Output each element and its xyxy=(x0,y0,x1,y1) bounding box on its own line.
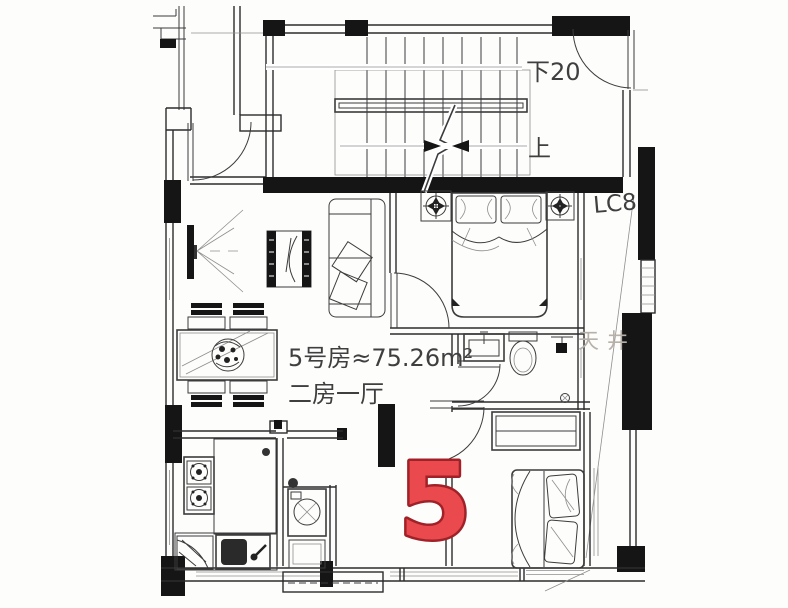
utility-walls xyxy=(277,438,336,566)
window-code-label: LC8 xyxy=(592,189,638,219)
column xyxy=(552,16,630,36)
ceiling-vent-icon xyxy=(421,191,451,221)
dining-table xyxy=(177,330,277,380)
area-label: 5号房≈75.26m² xyxy=(288,344,473,372)
ceiling-vent-icon xyxy=(546,192,574,220)
table-diagonals xyxy=(182,331,268,374)
door-leaf xyxy=(188,123,193,181)
stair-up-label: 上 xyxy=(528,136,551,162)
door-leaf xyxy=(628,30,634,89)
stove-icon xyxy=(184,457,214,514)
chair xyxy=(230,303,267,329)
lightwell-label: 天井 xyxy=(578,329,636,353)
stair-treads xyxy=(367,37,517,177)
single-bed xyxy=(512,470,584,568)
floorplan-canvas: 下20 上 xyxy=(0,0,788,608)
pillow xyxy=(332,242,372,282)
table-inner xyxy=(180,333,274,377)
landing-door xyxy=(573,29,634,89)
faucet-icon xyxy=(254,545,266,557)
wall-jog xyxy=(166,108,191,130)
stair-left-wall xyxy=(266,33,273,177)
sofa xyxy=(329,199,385,317)
stairwell-inner xyxy=(335,70,530,175)
dining-set xyxy=(177,303,277,407)
plant-icon xyxy=(212,339,244,371)
wall-ticks xyxy=(400,568,524,581)
bedroom1-south-wall xyxy=(390,328,584,334)
floorplan-page: 下20 上 xyxy=(0,0,788,608)
column xyxy=(161,556,185,596)
tv-view-lines xyxy=(197,210,243,292)
drain-cross xyxy=(562,395,568,401)
shower-icon xyxy=(551,337,573,353)
corner-fold xyxy=(539,298,547,306)
tv-icon xyxy=(187,225,194,279)
window-hatch xyxy=(641,268,655,304)
rug-band xyxy=(302,231,311,287)
unit-number: 5 xyxy=(398,441,471,563)
toilet-icon xyxy=(509,332,537,375)
stair-right-wall xyxy=(623,90,630,177)
blanket-curve xyxy=(515,471,530,567)
column xyxy=(638,147,655,260)
kitchen xyxy=(175,439,298,570)
corner-fold xyxy=(452,298,460,306)
pier xyxy=(274,420,282,429)
wall-stub xyxy=(240,115,281,131)
wall-fill xyxy=(160,39,176,48)
rug xyxy=(267,231,311,287)
arrow-left-icon xyxy=(452,140,469,152)
tv-bracket xyxy=(194,245,197,259)
handrail xyxy=(335,99,527,112)
pillow-folds xyxy=(460,199,537,219)
double-bed xyxy=(452,193,547,317)
column xyxy=(165,405,182,463)
light-fixture-icon xyxy=(288,478,298,488)
chair xyxy=(188,381,225,407)
bathroom xyxy=(458,332,573,406)
kitchen-top-wall xyxy=(173,431,343,438)
master-bedroom xyxy=(391,191,574,328)
washing-machine-icon xyxy=(288,489,326,536)
rug-band xyxy=(267,231,276,287)
pillow xyxy=(546,474,580,518)
door-swing-arc xyxy=(573,29,631,88)
pillow xyxy=(544,520,578,564)
corridor-bottom-wall xyxy=(190,177,266,184)
staircase: 下20 上 xyxy=(266,29,634,192)
door-swing-arc xyxy=(394,273,449,328)
stair-top-wall xyxy=(283,25,573,33)
corridor-partition xyxy=(234,6,240,115)
pier xyxy=(378,404,395,467)
chair xyxy=(230,381,267,407)
bedroom1-door xyxy=(391,273,449,328)
chair xyxy=(188,303,225,329)
living-room xyxy=(177,199,385,407)
bedroom2-east-wall xyxy=(584,412,590,566)
column xyxy=(164,180,181,223)
right-wall-lower xyxy=(630,430,636,548)
cabinet-inner xyxy=(293,544,321,564)
sofa-cushions xyxy=(329,199,371,317)
light-fixture-icon xyxy=(262,448,270,456)
kitchen-sink xyxy=(216,535,270,569)
wardrobe xyxy=(492,412,580,450)
tv-unit xyxy=(187,210,243,292)
labels: 5号房≈75.26m² 二房一厅 LC8 天井 5 xyxy=(288,189,638,563)
layout-label: 二房一厅 xyxy=(288,380,384,408)
utility-room xyxy=(288,489,326,568)
bottom-windows xyxy=(196,571,584,577)
bedroom1-west-wall xyxy=(390,193,396,273)
stair-down-label: 下20 xyxy=(526,58,581,86)
column xyxy=(263,20,285,36)
column xyxy=(345,20,368,36)
rug-pattern xyxy=(286,236,297,282)
door-leaf xyxy=(391,273,397,328)
neighbor-wall-stub xyxy=(153,6,186,110)
